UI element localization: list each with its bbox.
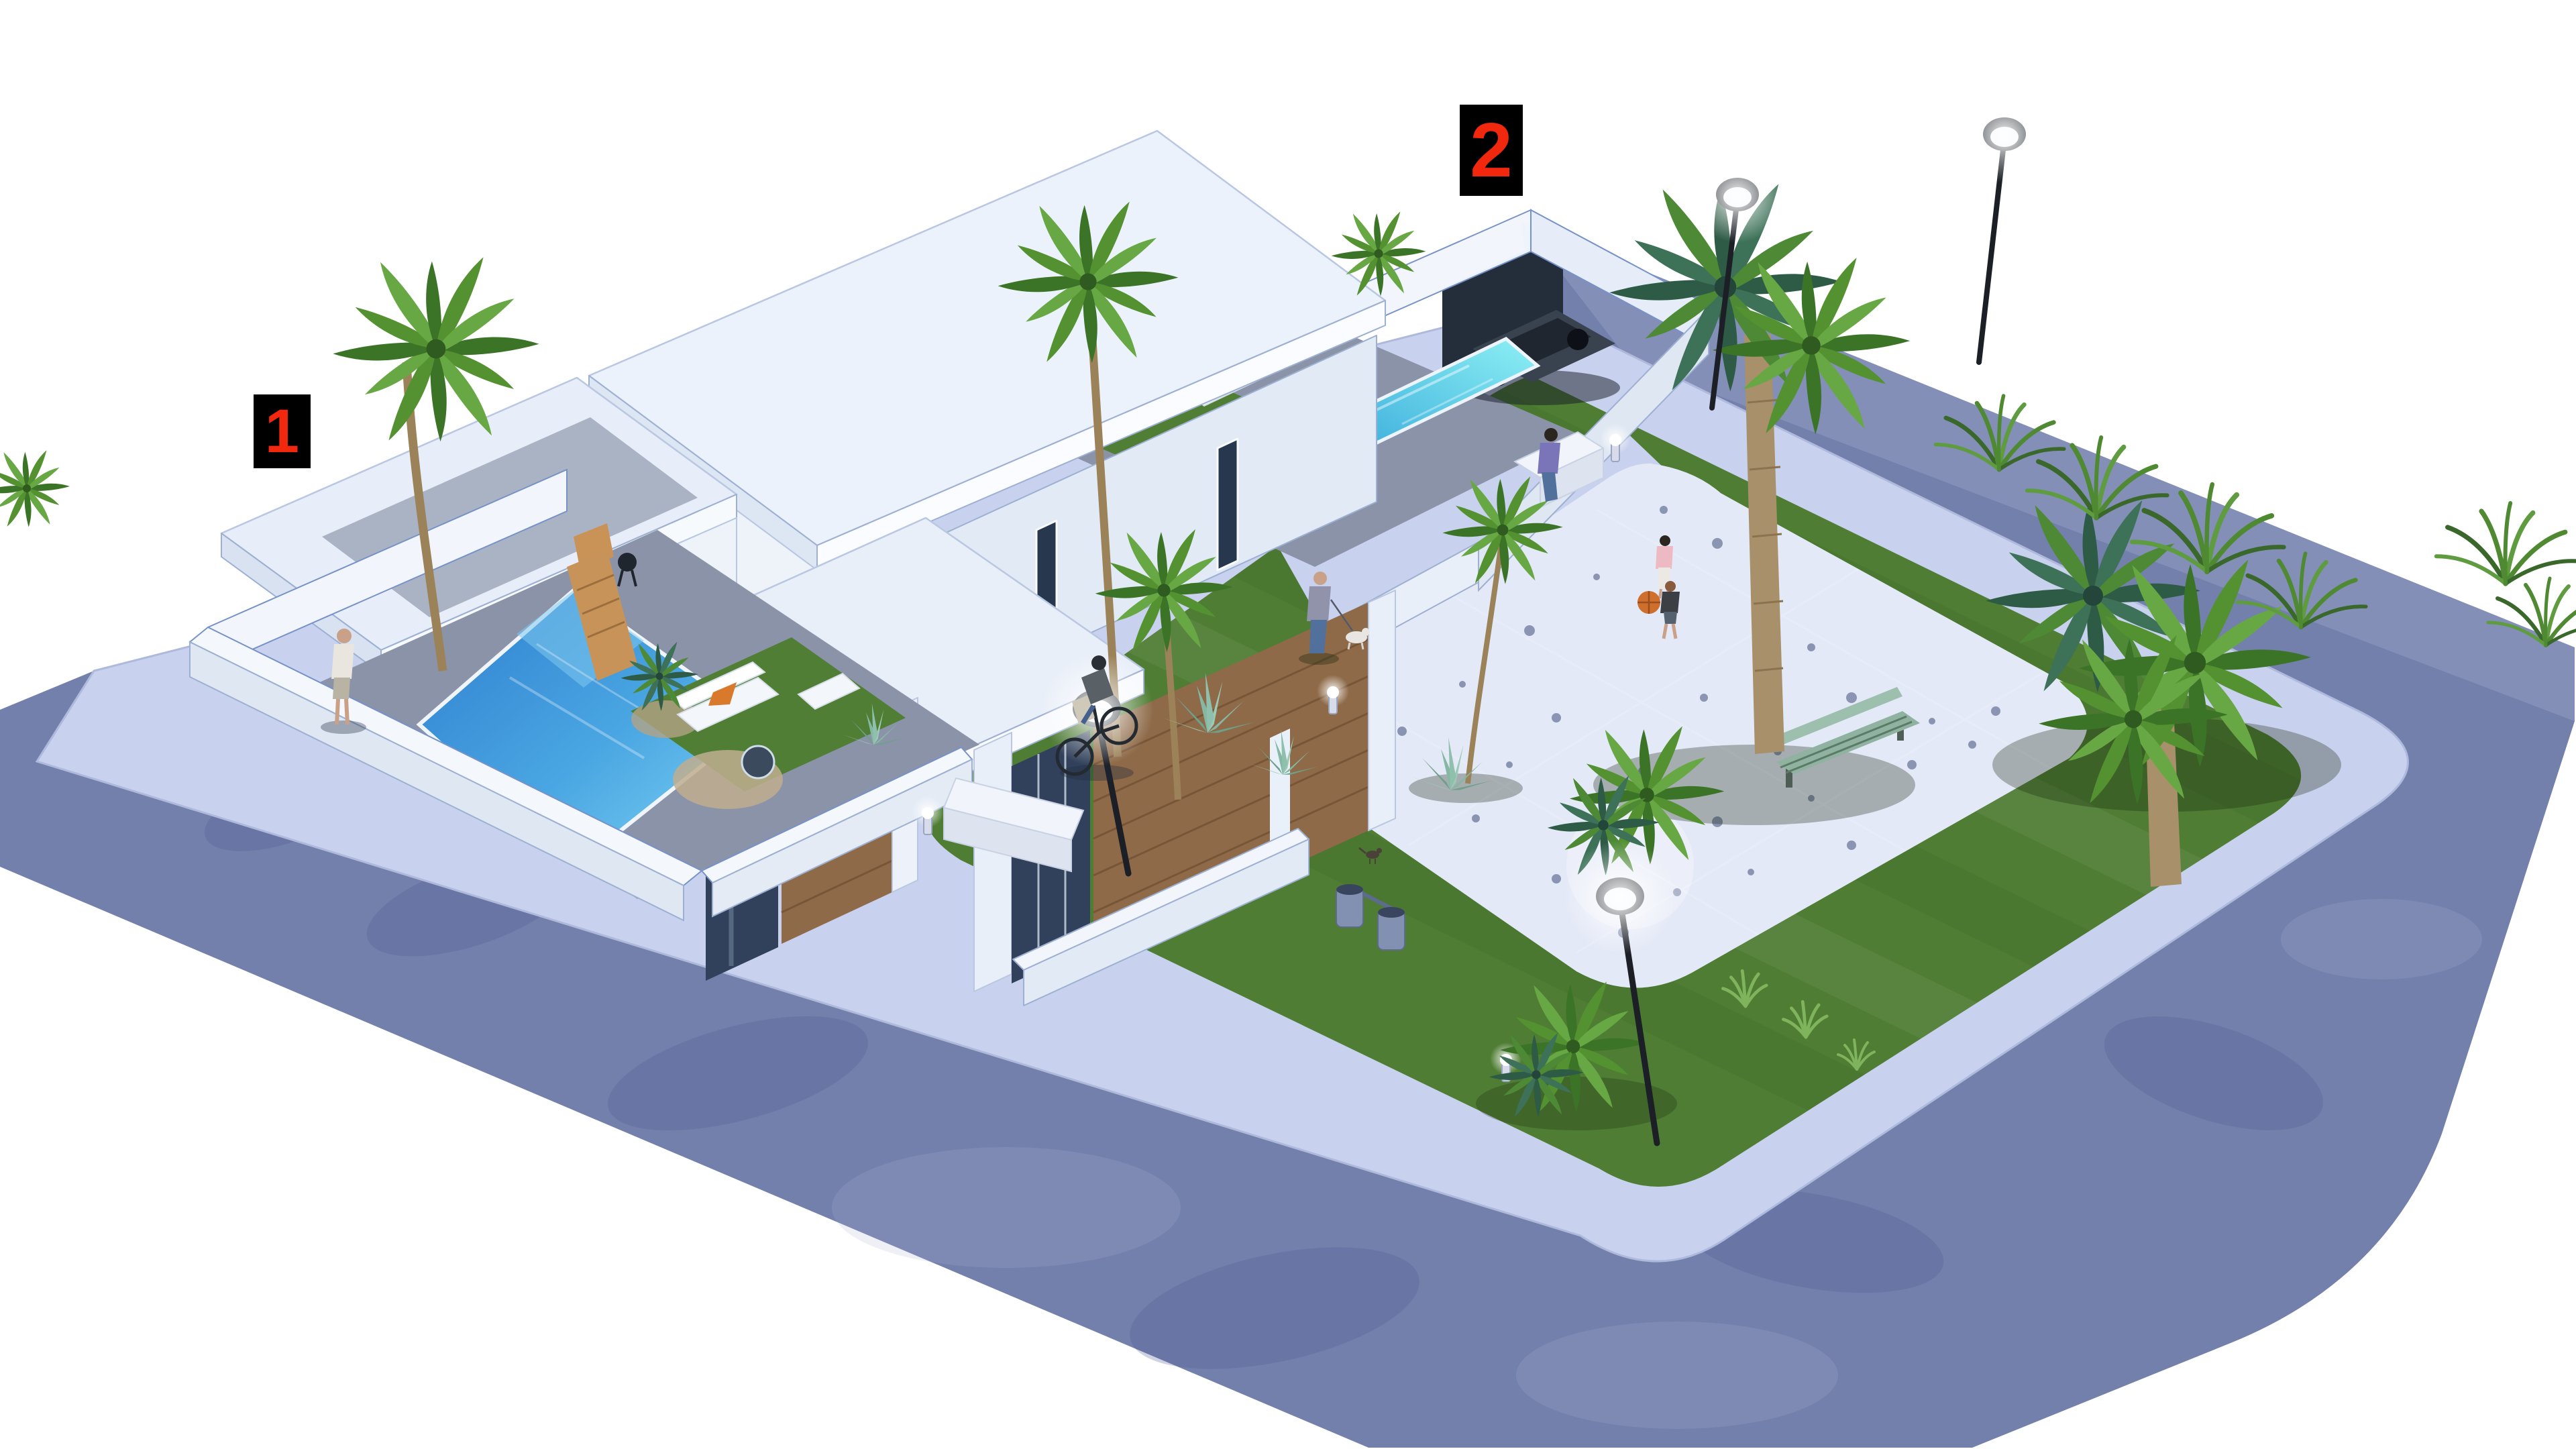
- marker-2-number: 2: [1470, 107, 1512, 195]
- window-slit: [1218, 439, 1238, 570]
- palm-crown: [0, 449, 70, 528]
- basketball: [1638, 591, 1660, 614]
- fern-bush: [2436, 503, 2576, 584]
- scene-render: [0, 0, 2576, 1449]
- marker-2: 2: [1460, 105, 1523, 196]
- marker-1: 1: [254, 394, 311, 468]
- render-canvas: 1 2: [0, 0, 2576, 1449]
- side-table: [742, 746, 774, 778]
- wall-edge: [1368, 590, 1395, 830]
- marker-1-number: 1: [265, 396, 299, 467]
- wall-strip: [974, 733, 1012, 991]
- street-lamp: [1957, 89, 2051, 362]
